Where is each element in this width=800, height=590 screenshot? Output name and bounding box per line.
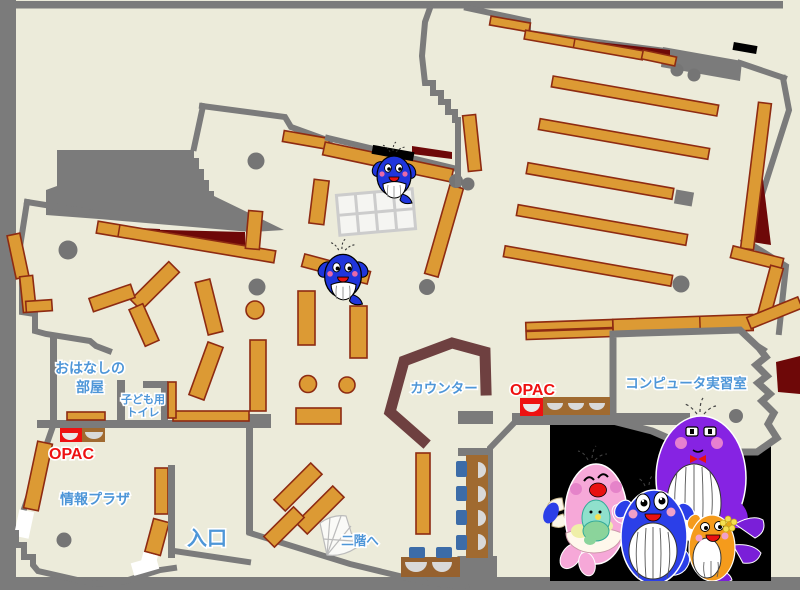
svg-text:入口: 入口 bbox=[187, 527, 227, 550]
svg-text:部屋: 部屋 bbox=[76, 379, 104, 395]
svg-text:トイレ: トイレ bbox=[127, 406, 160, 419]
svg-text:おはなしの: おはなしの bbox=[55, 360, 125, 376]
svg-text:コンピュータ実習室: コンピュータ実習室 bbox=[625, 375, 747, 391]
svg-text:子ども用: 子ども用 bbox=[121, 393, 165, 406]
svg-text:情報プラザ: 情報プラザ bbox=[60, 491, 130, 507]
svg-text:カウンター: カウンター bbox=[410, 381, 478, 396]
svg-text:OPAC: OPAC bbox=[510, 382, 555, 399]
svg-text:二階へ: 二階へ bbox=[341, 533, 379, 548]
svg-text:OPAC: OPAC bbox=[49, 446, 94, 463]
